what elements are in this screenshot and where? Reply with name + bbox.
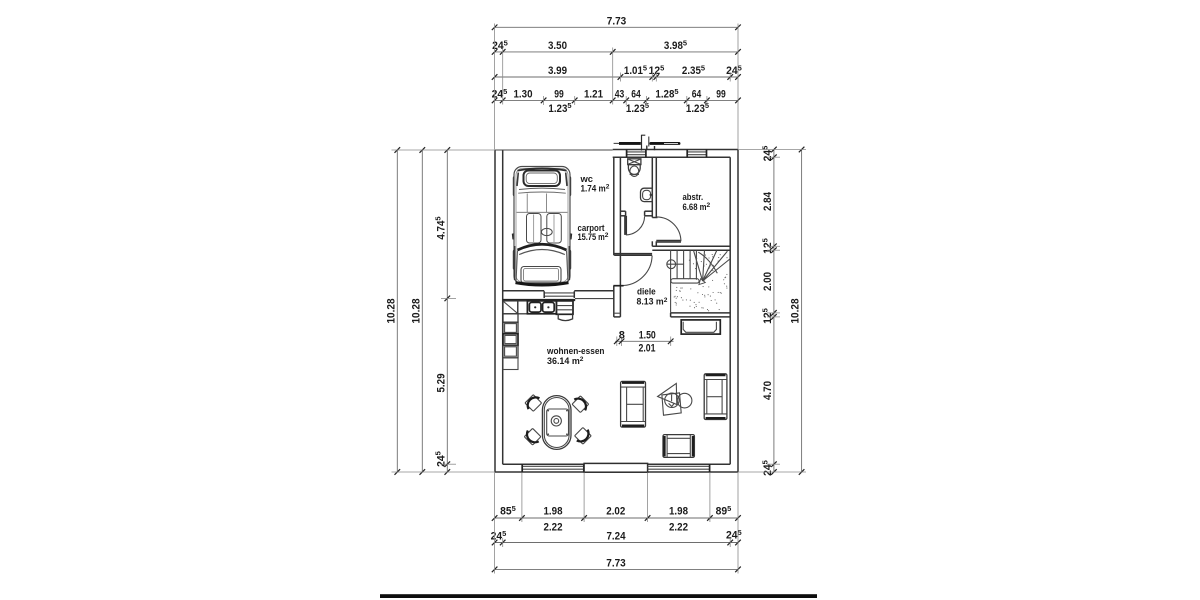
svg-text:1.98: 1.98 [669,506,688,518]
svg-text:5.29: 5.29 [435,374,447,393]
svg-text:10.28: 10.28 [385,299,397,324]
svg-text:7.24: 7.24 [607,531,627,543]
svg-text:1.30: 1.30 [514,88,533,100]
svg-text:1.74 m2: 1.74 m2 [581,182,610,193]
svg-text:10.28: 10.28 [790,299,802,324]
svg-text:43: 43 [615,88,625,100]
svg-text:2.22: 2.22 [669,521,688,533]
svg-text:99: 99 [554,88,564,100]
svg-text:15.75 m2: 15.75 m2 [578,231,609,242]
svg-text:3.50: 3.50 [548,40,567,52]
svg-text:8: 8 [619,329,625,341]
svg-text:4.70: 4.70 [762,381,774,400]
svg-text:64: 64 [631,88,641,100]
svg-text:6.68 m2: 6.68 m2 [683,201,711,212]
svg-text:99: 99 [716,88,726,100]
svg-text:10.28: 10.28 [410,299,422,324]
svg-text:2.22: 2.22 [544,521,563,533]
svg-text:3.99: 3.99 [548,65,567,77]
svg-text:2.02: 2.02 [606,506,625,518]
svg-text:64: 64 [692,88,702,100]
svg-text:2.84: 2.84 [762,191,774,211]
svg-text:7.73: 7.73 [607,15,627,27]
svg-text:8.13 m2: 8.13 m2 [637,296,668,307]
svg-text:1.21: 1.21 [584,88,603,100]
svg-text:1.98: 1.98 [544,506,563,518]
svg-text:7.73: 7.73 [606,558,626,570]
svg-text:36.14 m2: 36.14 m2 [547,355,584,366]
svg-text:2.00: 2.00 [762,272,774,291]
svg-text:1.50: 1.50 [639,329,656,341]
svg-text:2.01: 2.01 [639,342,656,354]
